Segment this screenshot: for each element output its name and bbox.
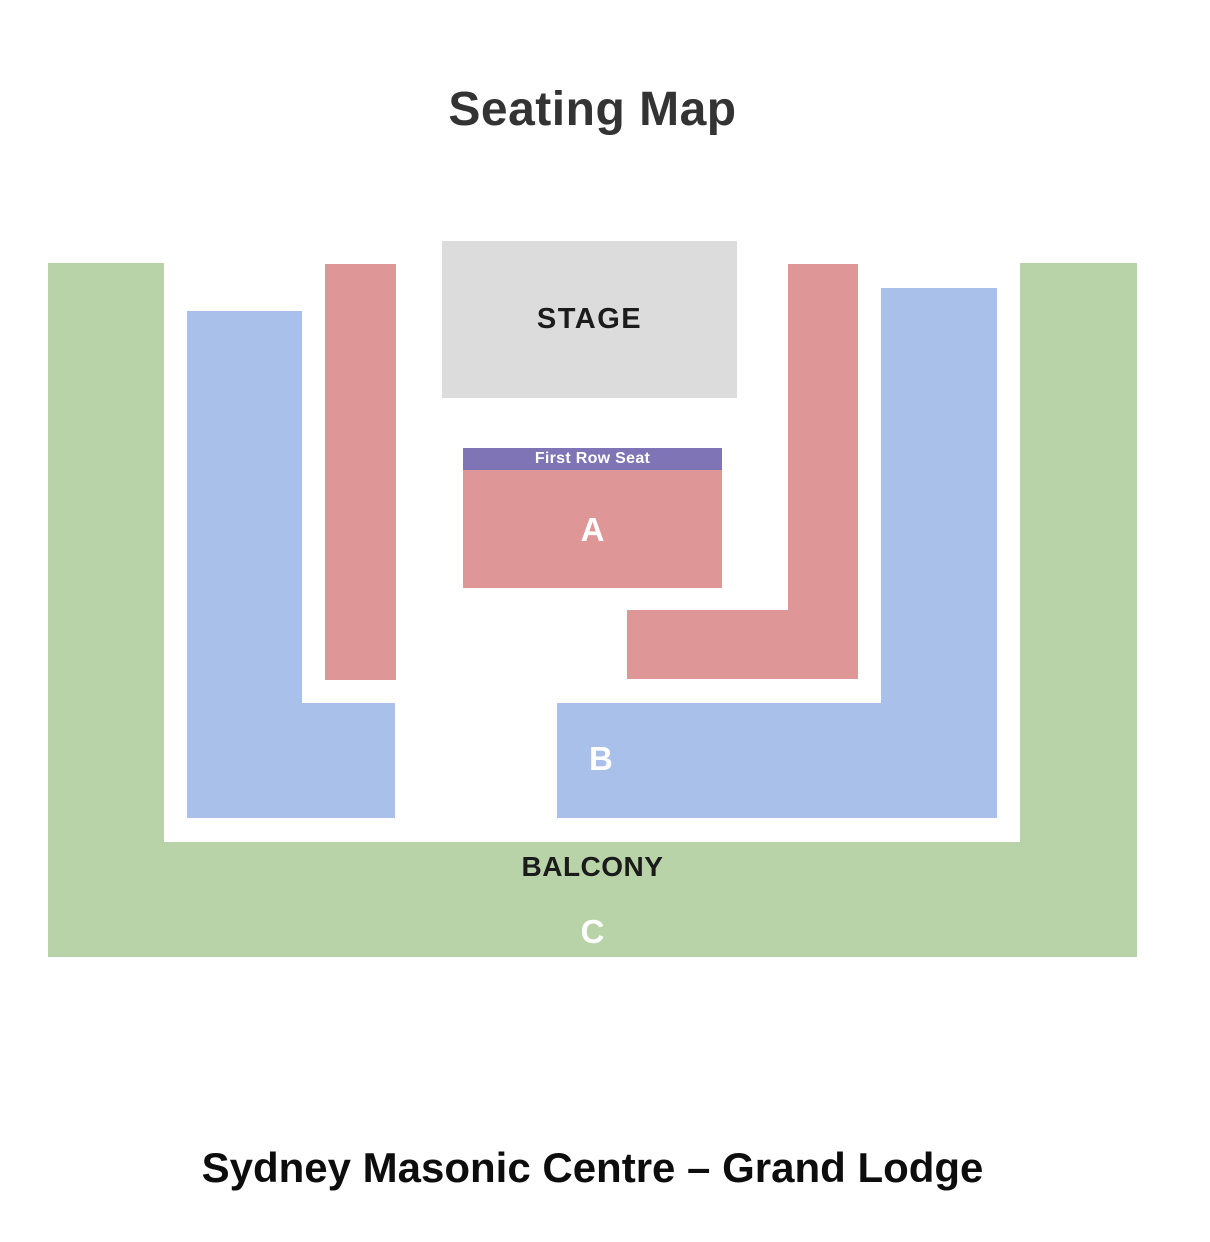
seating-map: STAGE First Row Seat A B BALCONY C	[48, 241, 1137, 957]
venue-title: Sydney Masonic Centre – Grand Lodge	[48, 1144, 1137, 1192]
page-title: Seating Map	[48, 82, 1137, 137]
section-c-label: C	[48, 915, 1137, 948]
balcony-label: BALCONY	[48, 851, 1137, 883]
balcony-section-c[interactable]: BALCONY C	[48, 263, 1137, 957]
